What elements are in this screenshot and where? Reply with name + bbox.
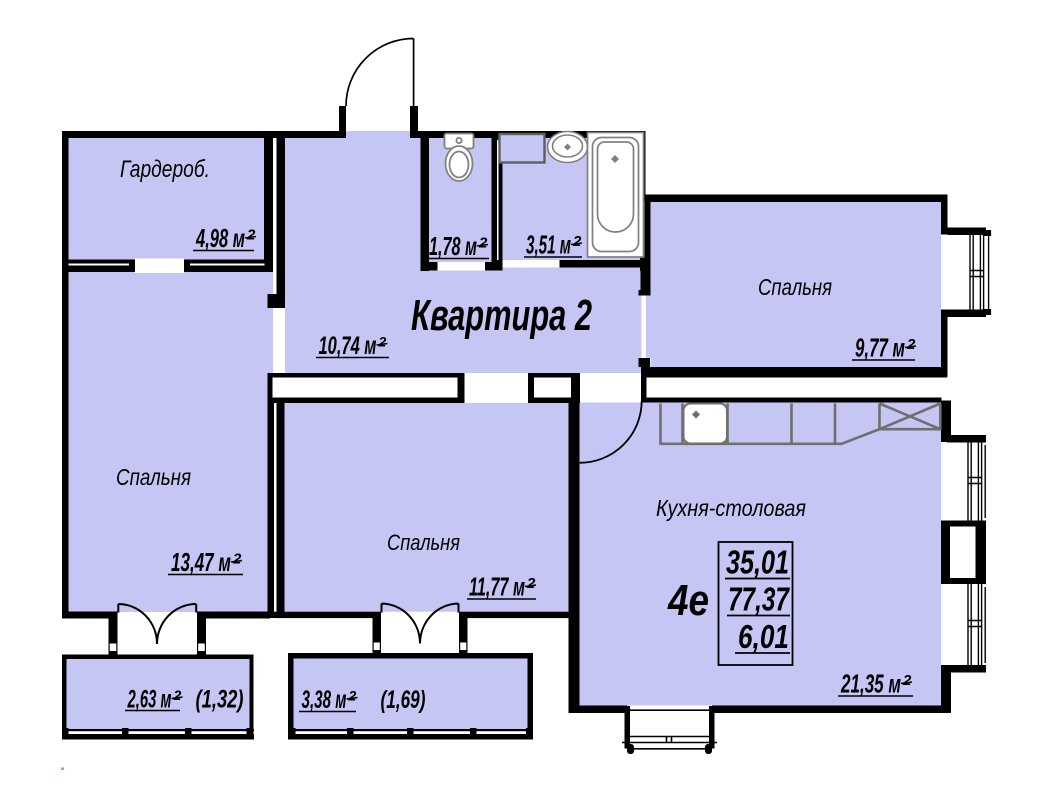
svg-text:Кухня-столовая: Кухня-столовая [656,495,806,521]
svg-text:Спальня: Спальня [116,464,191,490]
svg-text:Квартира 2: Квартира 2 [411,291,592,340]
svg-text:11,77 м: 11,77 м [469,572,525,602]
svg-text:21,35 м: 21,35 м [840,669,901,699]
svg-text:2: 2 [526,575,536,592]
svg-text:2,63 м: 2,63 м [127,686,172,714]
svg-text:10,74 м: 10,74 м [319,332,377,360]
svg-text:2: 2 [902,672,912,689]
svg-text:2: 2 [478,235,488,252]
svg-text:1,78 м: 1,78 м [429,231,477,261]
svg-text:4,98 м: 4,98 м [195,223,245,253]
svg-text:9,77 м: 9,77 м [855,333,905,363]
svg-text:(1,32): (1,32) [196,686,244,714]
svg-text:3,51 м: 3,51 м [526,230,571,260]
svg-text:(1,69): (1,69) [381,686,426,714]
svg-text:2: 2 [173,687,182,703]
svg-text:3,38 м: 3,38 м [302,686,347,714]
svg-text:Гардероб.: Гардероб. [120,156,210,183]
svg-text:2: 2 [246,227,256,244]
svg-text:2: 2 [906,336,916,353]
svg-text:Спальня: Спальня [758,274,832,300]
svg-text:77,37: 77,37 [728,581,790,618]
svg-text:4е: 4е [667,576,709,625]
svg-text:35,01: 35,01 [726,544,789,581]
svg-text:2: 2 [348,688,357,704]
svg-text:2: 2 [378,334,387,350]
svg-text:2: 2 [232,551,242,568]
svg-text:6,01: 6,01 [738,618,789,655]
svg-text:Спальня: Спальня [387,530,460,555]
svg-text:13,47 м: 13,47 м [171,547,231,577]
svg-text:2: 2 [572,233,582,250]
